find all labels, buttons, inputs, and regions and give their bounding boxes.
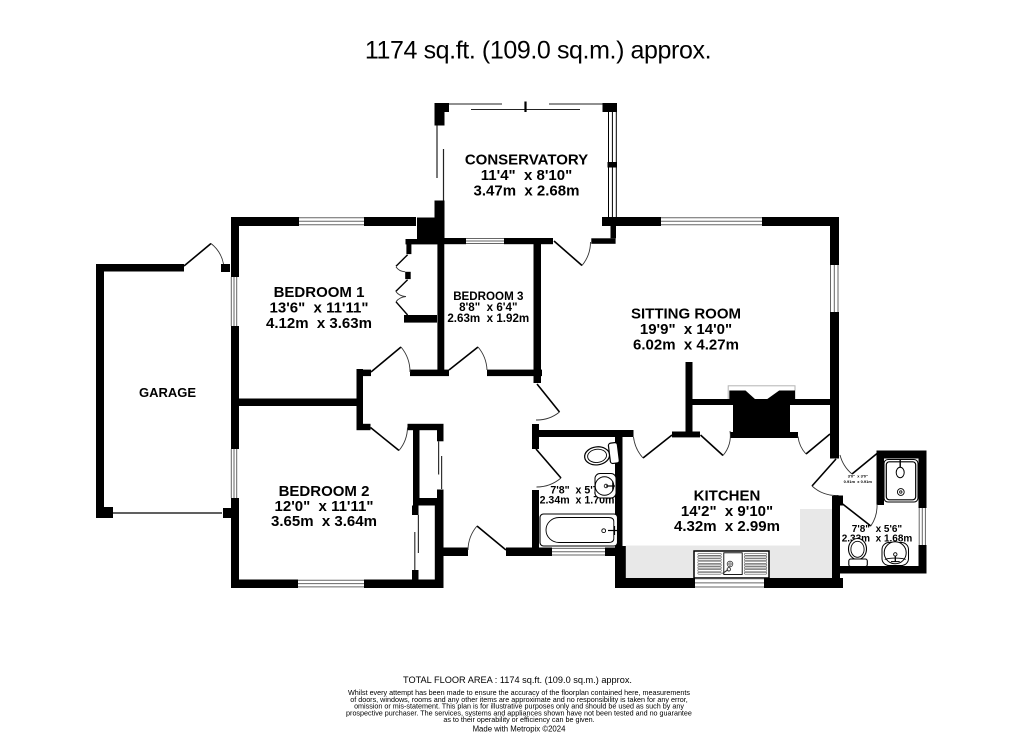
svg-text:1174 sq.ft. (109.0 sq.m.) appr: 1174 sq.ft. (109.0 sq.m.) approx. xyxy=(365,37,711,65)
svg-text:SITTING ROOM: SITTING ROOM xyxy=(631,305,741,322)
svg-text:3.47m x 2.68m: 3.47m x 2.68m xyxy=(474,183,580,200)
svg-text:TOTAL FLOOR AREA : 1174 sq.ft.: TOTAL FLOOR AREA : 1174 sq.ft. (109.0 sq… xyxy=(403,675,632,685)
svg-text:GARAGE: GARAGE xyxy=(139,385,196,400)
svg-text:3.65m x 3.64m: 3.65m x 3.64m xyxy=(271,513,377,530)
svg-text:4.32m x 2.99m: 4.32m x 2.99m xyxy=(674,518,780,535)
svg-text:as to their operability or eff: as to their operability or efficiency ca… xyxy=(443,715,594,724)
svg-text:11'4" x 8'10": 11'4" x 8'10" xyxy=(481,167,572,184)
svg-text:4.12m x 3.63m: 4.12m x 3.63m xyxy=(266,315,372,332)
svg-text:CONSERVATORY: CONSERVATORY xyxy=(465,151,588,168)
svg-text:Made with Metropix ©2024: Made with Metropix ©2024 xyxy=(473,725,567,734)
svg-text:2.63m x 1.92m: 2.63m x 1.92m xyxy=(447,312,529,325)
svg-text:0.91m x 0.91m: 0.91m x 0.91m xyxy=(844,479,873,484)
svg-text:3'0" x 3'0": 3'0" x 3'0" xyxy=(848,474,868,479)
svg-text:6.02m x 4.27m: 6.02m x 4.27m xyxy=(633,336,739,353)
